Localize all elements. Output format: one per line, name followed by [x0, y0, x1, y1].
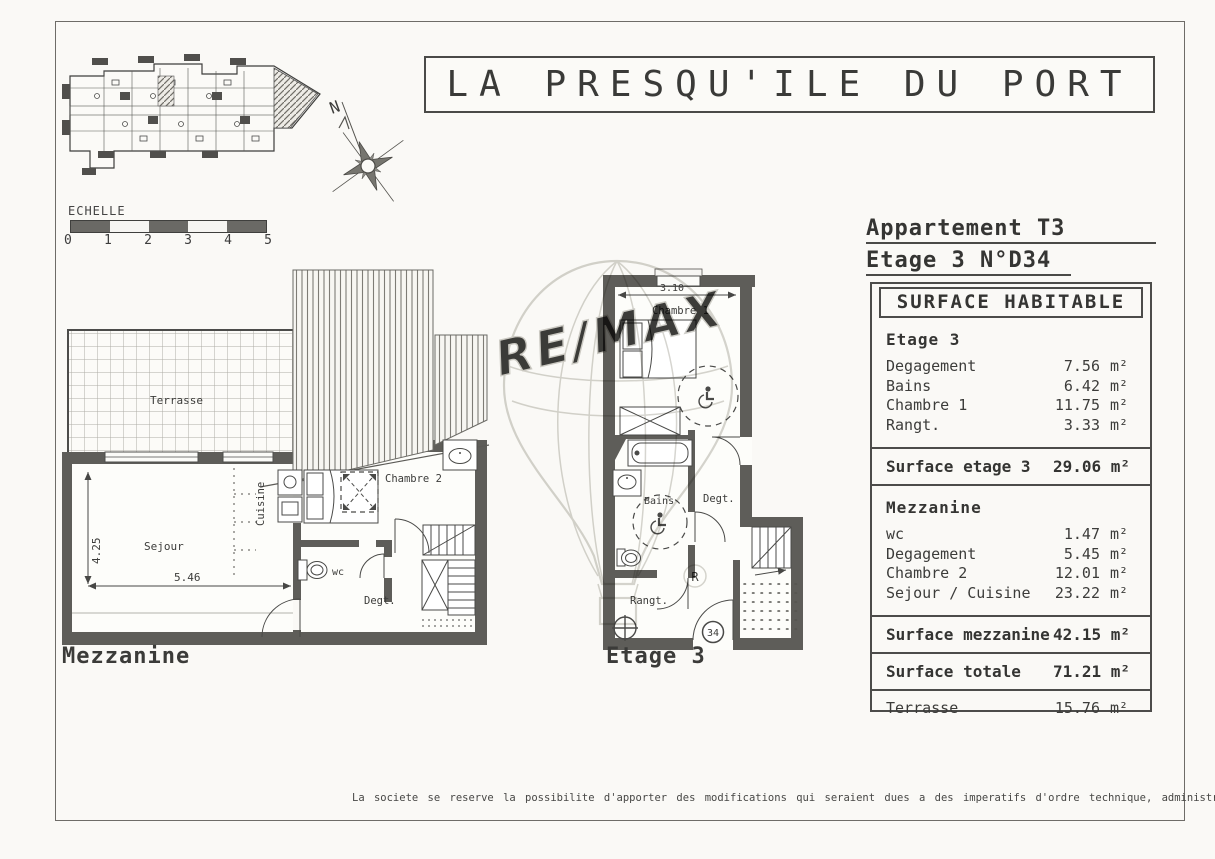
section-heading-mezzanine: Mezzanine	[886, 498, 1150, 517]
apartment-header: Appartement T3 Etage 3 N°D34	[866, 216, 1156, 280]
dim-width: 5.46	[174, 571, 201, 584]
table-row: Sejour / Cuisine 23.22 m²	[886, 584, 1136, 604]
scanned-floorplan-sheet: LA PRESQU'ILE DU PORT	[0, 0, 1215, 859]
stairwell-symbol	[752, 527, 791, 575]
etage3-total: Surface etage 3 29.06 m²	[872, 449, 1150, 484]
table-row: Degagement 5.45 m²	[886, 545, 1136, 565]
table-row: Chambre 2 12.01 m²	[886, 564, 1136, 584]
mezzanine-total: Surface mezzanine 42.15 m²	[872, 617, 1150, 652]
cuisine-label: Cuisine	[255, 482, 267, 526]
unit-number-badge: 34	[703, 622, 724, 643]
section-heading-etage3: Etage 3	[886, 330, 1150, 349]
window-openings	[105, 452, 273, 462]
sink-symbol	[613, 470, 641, 496]
etage3-floorplan: 3.10 Chambre 1 3.80 Bains	[600, 268, 810, 653]
table-row: Degagement 7.56 m²	[886, 357, 1136, 377]
sejour-label: Sejour	[144, 540, 184, 553]
site-plan-stair-core	[158, 76, 174, 106]
disclaimer-text: La societe se reserve la possibilite d'a…	[352, 792, 1215, 804]
wardrobe-symbol	[620, 407, 680, 435]
apartment-unit-ref: Etage 3 N°D34	[866, 248, 1071, 276]
north-arrowhead	[339, 117, 349, 129]
north-label: N	[327, 97, 343, 118]
mezzanine-caption: Mezzanine	[62, 644, 190, 669]
chambre1-label: Chambre 1	[652, 305, 709, 317]
sink-symbol	[443, 440, 477, 470]
degagement-label: Degt.	[703, 493, 735, 505]
site-plan-overview	[62, 36, 337, 201]
toilet-symbol	[617, 549, 641, 566]
surface-table-title: SURFACE HABITABLE	[879, 287, 1143, 318]
bains-label: Bains	[644, 496, 674, 507]
bathtub-symbol	[628, 440, 692, 466]
toilet-symbol	[298, 560, 327, 580]
table-row: wc 1.47 m²	[886, 525, 1136, 545]
table-row: Chambre 1 11.75 m²	[886, 396, 1136, 416]
project-title: LA PRESQU'ILE DU PORT	[446, 64, 1132, 105]
table-row: Terrasse 15.76 m²	[886, 699, 1136, 719]
dim-height: 4.25	[90, 538, 103, 565]
table-row: Bains 6.42 m²	[886, 377, 1136, 397]
terrasse-label: Terrasse	[150, 394, 203, 407]
apartment-type: Appartement T3	[866, 216, 1156, 244]
svg-text:34: 34	[707, 628, 719, 639]
mezzanine-floorplan: Terrasse	[58, 268, 512, 648]
dim-width: 3.10	[660, 283, 684, 294]
compass-rose: N	[322, 88, 412, 208]
scale-ticks: 0 1 2 3 4 5	[64, 233, 272, 248]
terrace-row: Terrasse 15.76 m²	[886, 699, 1136, 719]
compass-star	[322, 114, 412, 208]
scale-label: ECHELLE	[68, 204, 126, 218]
bed-symbol-chambre1	[620, 320, 696, 378]
grand-total: Surface totale 71.21 m²	[872, 654, 1150, 689]
degagement-label: Degt.	[364, 595, 396, 607]
site-plan-roof-hatch	[274, 68, 318, 128]
project-title-box: LA PRESQU'ILE DU PORT	[424, 56, 1155, 113]
table-row: Rangt. 3.33 m²	[886, 416, 1136, 436]
chambre2-label: Chambre 2	[385, 473, 442, 485]
wc-label: wc	[332, 567, 344, 578]
rangement-label: Rangt.	[630, 595, 668, 607]
scale-bar	[70, 220, 267, 233]
surface-table: SURFACE HABITABLE Etage 3 Degagement 7.5…	[870, 282, 1152, 712]
mezzanine-rows: wc 1.47 m² Degagement 5.45 m² Chambre 2 …	[886, 525, 1136, 603]
etage3-caption: Etage 3	[606, 644, 706, 669]
etage3-rows: Degagement 7.56 m² Bains 6.42 m² Chambre…	[886, 357, 1136, 435]
